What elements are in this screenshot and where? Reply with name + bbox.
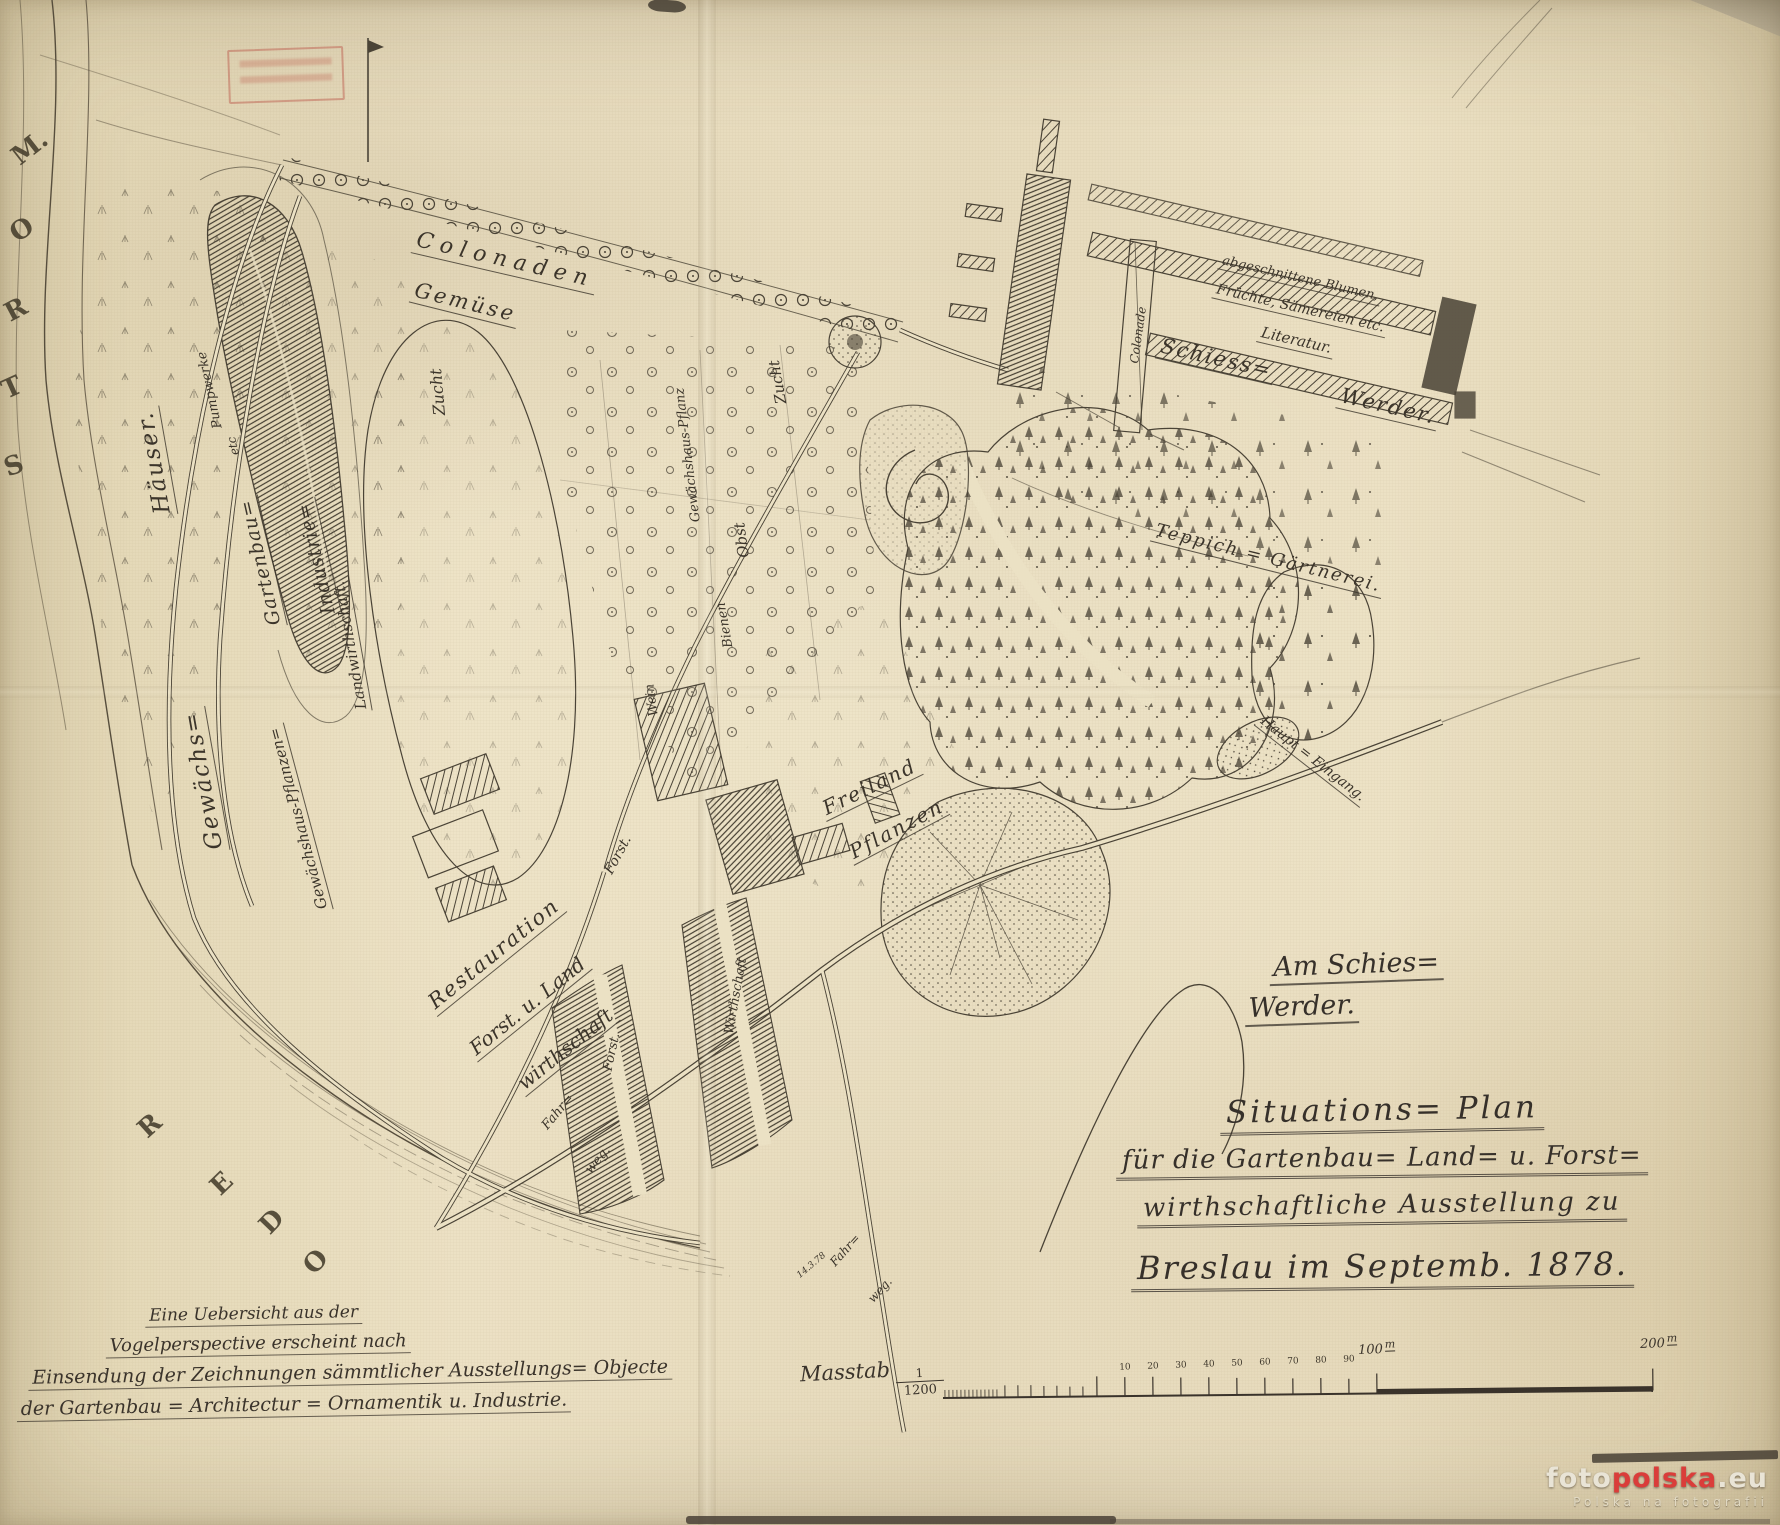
map-label: Haupt = Eingang. (1254, 712, 1370, 808)
title-block: Situations= Plan für die Gartenbau= Land… (1062, 1092, 1702, 1298)
map-label: E (206, 1168, 238, 1200)
map-label: Häuser. (134, 406, 179, 519)
map-label: Zucht (767, 359, 789, 405)
scale-100m: 100m (1358, 1337, 1396, 1358)
map-label: Werder. (1335, 385, 1440, 431)
note-line: der Gartenbau = Architectur = Ornamentik… (17, 1388, 572, 1422)
map-label: Forst. (602, 833, 634, 876)
map-label: 90 (1343, 1355, 1355, 1364)
map-label: 80 (1315, 1356, 1327, 1365)
map-label: 40 (1203, 1360, 1215, 1369)
map-label: weg. (866, 1275, 894, 1304)
map-label: Gewächshaus-Pflanz (673, 387, 702, 523)
map-label: Fahr= (540, 1092, 577, 1132)
map-label: M. (7, 126, 53, 170)
map-label: 70 (1287, 1357, 1299, 1366)
map-label: O (6, 213, 39, 247)
map-label: Colonade (1128, 306, 1148, 364)
stamp-text-row (239, 57, 331, 67)
area-note-line: Werder. (1244, 989, 1359, 1027)
area-note: Am Schies= Werder. (1269, 944, 1512, 1032)
map-label: Bienen (715, 601, 736, 648)
scale-label: Masstab (799, 1358, 890, 1387)
watermark: fotopolska.eu Polska na fotografii (1546, 1463, 1768, 1509)
scale-fraction-denominator: 1200 (896, 1381, 945, 1399)
map-title-line: Situations= Plan (1220, 1089, 1545, 1136)
map-label: D (255, 1205, 289, 1239)
map-label: 60 (1259, 1358, 1271, 1367)
map-label: T (0, 372, 26, 404)
map-label: O (299, 1245, 333, 1279)
map-label: Landwirthschaft. (331, 577, 372, 714)
map-label: 30 (1175, 1361, 1187, 1370)
note-line: Vogelperspective erscheint nach (105, 1330, 410, 1358)
map-label: Gartenbau= (236, 494, 288, 630)
map-label: 50 (1231, 1359, 1243, 1368)
map-title-line: für die Gartenbau= Land= u. Forst= (1116, 1140, 1648, 1181)
scale-unit: m (1666, 1331, 1677, 1345)
map-label: Teppich = Gärtnerei. (1150, 521, 1386, 599)
scanned-map-page: M.ORTSREDOGewächs=Häuser.PumpwerkeetcGar… (0, 0, 1780, 1525)
map-label: Gewächshaus-Pflanzen= (266, 722, 333, 913)
map-label: S (1, 451, 28, 482)
stamp-text-row (240, 73, 332, 83)
map-title-line: wirthschaftliche Ausstellung zu (1137, 1187, 1627, 1229)
note-line: Eine Uebersicht aus der (145, 1302, 362, 1328)
map-label: Fahr= (828, 1232, 862, 1268)
scale-unit: m (1384, 1337, 1395, 1351)
map-label: Wein (643, 683, 660, 717)
area-note-line: Am Schies= (1269, 946, 1444, 986)
map-label: Zucht (428, 368, 448, 416)
map-label: Wirthschaft (723, 957, 749, 1035)
scale-200m: 200m (1640, 1331, 1678, 1352)
map-title-line: Breslau im Septemb. 1878. (1130, 1245, 1633, 1292)
map-label: 10 (1119, 1363, 1131, 1372)
map-label: Forst. (602, 1032, 623, 1072)
map-label: etc (225, 436, 241, 457)
map-label: Literatur. (1256, 324, 1336, 359)
archive-stamp (227, 46, 345, 104)
map-label: Pumpwerke (195, 350, 224, 429)
map-label: weg. (583, 1144, 613, 1176)
scale-fraction: 1 1200 (895, 1365, 945, 1399)
map-label: Obst (732, 521, 752, 558)
map-label: 20 (1147, 1362, 1159, 1371)
map-label: 14.3.78 (796, 1252, 828, 1281)
map-label: R (133, 1109, 166, 1143)
map-label: Gemüse (409, 279, 521, 329)
note-line: Einsendung der Zeichnungen sämmtlicher A… (28, 1356, 672, 1391)
note-block: Eine Uebersicht aus der Vogelperspective… (13, 1296, 715, 1429)
map-label: R (0, 293, 31, 326)
watermark-tagline: Polska na fotografii (1546, 1495, 1768, 1509)
watermark-logo: fotopolska.eu (1546, 1463, 1768, 1494)
map-label: Gewächs= (180, 706, 231, 854)
